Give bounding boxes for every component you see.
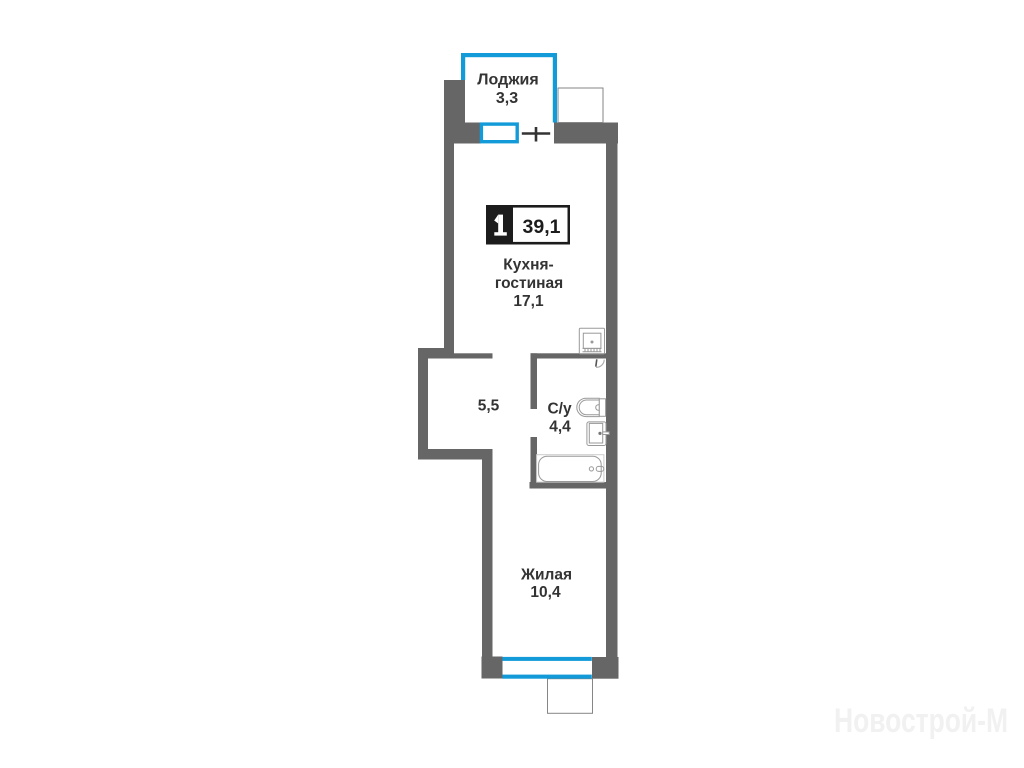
svg-text:4,4: 4,4 [549,419,571,436]
svg-text:гостиная: гостиная [495,275,563,292]
svg-text:Новострой-М: Новострой-М [834,702,1008,740]
svg-text:10,4: 10,4 [530,584,561,601]
svg-text:5,5: 5,5 [478,398,500,415]
svg-text:Лоджия: Лоджия [477,72,538,89]
svg-text:С/у: С/у [547,401,572,418]
svg-text:Кухня-: Кухня- [503,257,553,274]
svg-text:3,3: 3,3 [496,90,518,107]
svg-text:39,1: 39,1 [523,216,561,238]
svg-text:Жилая: Жилая [520,567,572,584]
svg-text:17,1: 17,1 [513,293,544,310]
